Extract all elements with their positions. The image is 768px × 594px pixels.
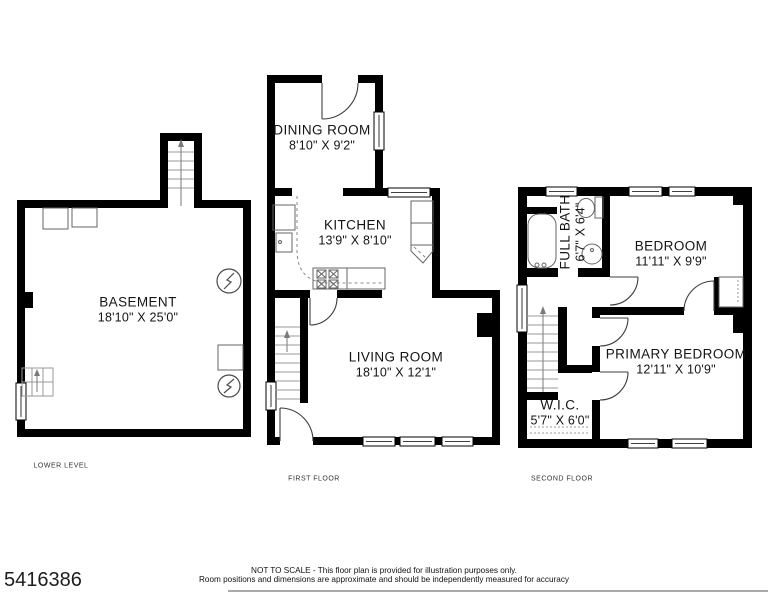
room-name: KITCHEN bbox=[318, 218, 391, 234]
room-name: FULL BATH bbox=[558, 195, 574, 270]
basement-laundry-boxes bbox=[43, 208, 97, 229]
basement-window-left bbox=[16, 383, 26, 420]
kitchen-right-cabinet bbox=[411, 201, 433, 263]
room-name: BASEMENT bbox=[98, 295, 178, 311]
basement-walls bbox=[17, 133, 251, 437]
room-dims: 8'10" X 9'2" bbox=[273, 139, 370, 154]
room-dims: 18'10" X 12'1" bbox=[349, 366, 443, 381]
floor-plan-page: BASEMENT 18'10" X 25'0" DINING ROOM 8'10… bbox=[0, 0, 768, 594]
basement-corner-stairs bbox=[22, 368, 53, 396]
bottom-divider bbox=[228, 590, 768, 592]
electrical-symbol-icon bbox=[217, 269, 241, 293]
room-label-bedroom: BEDROOM 11'11" X 9'9" bbox=[635, 239, 708, 270]
bathtub-icon bbox=[528, 214, 556, 268]
disclaimer: NOT TO SCALE - This floor plan is provid… bbox=[0, 566, 768, 585]
room-label-full-bath: FULL BATH 6'7" X 6'4" bbox=[558, 195, 589, 270]
room-dims: 12'11" X 10'9" bbox=[606, 363, 747, 378]
room-name: PRIMARY BEDROOM bbox=[606, 347, 747, 363]
floor-label-second-floor: SECOND FLOOR bbox=[531, 476, 593, 483]
stove-burners-icon bbox=[317, 270, 338, 288]
second-floor-doors bbox=[600, 277, 714, 400]
room-label-primary-bedroom: PRIMARY BEDROOM 12'11" X 10'9" bbox=[606, 347, 747, 378]
room-label-living-room: LIVING ROOM 18'10" X 12'1" bbox=[349, 350, 443, 381]
room-name: LIVING ROOM bbox=[349, 350, 443, 366]
room-label-dining-room: DINING ROOM 8'10" X 9'2" bbox=[273, 123, 370, 154]
first-floor-windows bbox=[266, 112, 473, 446]
room-label-kitchen: KITCHEN 13'9" X 8'10" bbox=[318, 218, 391, 249]
room-name: BEDROOM bbox=[635, 239, 708, 255]
floor-label-first-floor: FIRST FLOOR bbox=[288, 476, 340, 483]
refrigerator-icon bbox=[273, 205, 295, 230]
floor-label-lower-level: LOWER LEVEL bbox=[34, 463, 89, 470]
electrical-symbol-icon bbox=[218, 375, 240, 397]
room-dims: 6'7" X 6'4" bbox=[574, 195, 589, 270]
kitchen-sink-icon bbox=[276, 233, 292, 252]
second-floor-staircase-up bbox=[527, 306, 558, 392]
room-name: DINING ROOM bbox=[273, 123, 370, 139]
bedroom-closet bbox=[719, 277, 743, 307]
room-dims: 11'11" X 9'9" bbox=[635, 255, 708, 270]
room-dims: 13'9" X 8'10" bbox=[318, 234, 391, 249]
room-label-basement: BASEMENT 18'10" X 25'0" bbox=[98, 295, 178, 326]
basement-staircase-up bbox=[168, 139, 194, 206]
room-name: W.I.C. bbox=[531, 398, 590, 414]
room-dims: 5'7" X 6'0" bbox=[531, 414, 590, 429]
disclaimer-line-1: NOT TO SCALE - This floor plan is provid… bbox=[0, 566, 768, 575]
first-floor-staircase-up bbox=[275, 327, 300, 399]
disclaimer-line-2: Room positions and dimensions are approx… bbox=[0, 575, 768, 584]
room-dims: 18'10" X 25'0" bbox=[98, 311, 178, 326]
room-label-wic: W.I.C. 5'7" X 6'0" bbox=[531, 398, 590, 429]
basement-plan bbox=[16, 133, 251, 437]
basement-utility-box bbox=[218, 345, 243, 370]
